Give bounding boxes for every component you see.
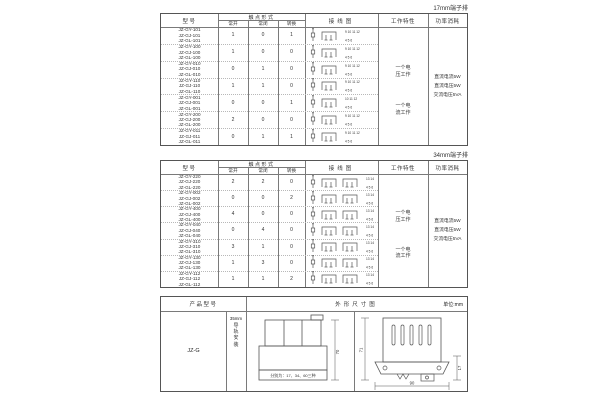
header-changeover: 转换 bbox=[278, 20, 305, 27]
model-cell: JZ-GY-001 JZ-GJ-001 JZ-GL-001 bbox=[161, 94, 218, 111]
model-names: JZ-GY-110 JZ-GJ-110 JZ-GL-110 bbox=[179, 78, 201, 94]
power-consumption-values: 直流电流5W 直流电压5W 交流电压5VA bbox=[428, 174, 467, 287]
contact-nc-count: 2 bbox=[248, 174, 278, 190]
svg-text:13 14: 13 14 bbox=[366, 241, 374, 245]
model-names: JZ-GY-040 JZ-GJ-040 JZ-GL-040 bbox=[178, 222, 200, 238]
header-power-consumption: 功率消耗 bbox=[428, 14, 467, 27]
svg-text:4 5 6: 4 5 6 bbox=[345, 140, 352, 144]
work-mode-current: 一个电 流工作 bbox=[378, 102, 428, 118]
contact-no-count: 0 bbox=[218, 190, 248, 206]
model-names: JZ-GY-310 JZ-GJ-310 JZ-GL-310 bbox=[178, 239, 200, 255]
wiring-diagram-cell: 13 144 5 6 bbox=[305, 222, 378, 238]
wiring-diagram-cell: 9 10 11 124 5 6 bbox=[305, 128, 378, 145]
contact-co-count: 0 bbox=[278, 44, 305, 61]
contact-nc-count: 1 bbox=[248, 78, 278, 95]
svg-text:9 10 11 12: 9 10 11 12 bbox=[345, 47, 360, 51]
svg-text:13 14: 13 14 bbox=[366, 209, 374, 213]
model-cell: JZ-GY-002 JZ-GJ-002 JZ-GL-002 bbox=[161, 190, 218, 206]
model-names: JZ-GY-100 JZ-GJ-100 JZ-GL-100 bbox=[178, 44, 200, 60]
outline-dimension-table: 产品型号外形尺寸图单位:mmJZ-G35mm导 轨 安 装分别为：17、34、6… bbox=[160, 296, 468, 392]
model-cell: JZ-GY-101 JZ-GJ-101 JZ-GL-101 bbox=[161, 27, 218, 44]
model-names: JZ-GY-400 JZ-GJ-400 JZ-GL-400 bbox=[178, 206, 200, 222]
model-names: JZ-GY-220 JZ-GJ-220 JZ-GL-220 bbox=[178, 174, 200, 190]
svg-text:13 14: 13 14 bbox=[366, 193, 374, 197]
model-cell: JZ-GY-200 JZ-GJ-200 JZ-GL-200 bbox=[161, 111, 218, 128]
work-mode-current: 一个电 流工作 bbox=[378, 245, 428, 261]
svg-text:4 5 6: 4 5 6 bbox=[345, 123, 352, 127]
model-names: JZ-GY-001 JZ-GJ-001 JZ-GL-001 bbox=[178, 95, 200, 111]
header-product-model: 产品型号 bbox=[161, 297, 246, 311]
model-cell: JZ-GY-112 JZ-GJ-112 JZ-GL-112 bbox=[161, 271, 218, 287]
mount-width-label: 35mm bbox=[226, 314, 246, 322]
wiring-diagram: 9 10 11 124 5 6 bbox=[307, 62, 377, 77]
header-wiring-diagram: 接线图 bbox=[305, 161, 378, 174]
header-model: 型号 bbox=[161, 161, 218, 174]
svg-text:9 10 11 12: 9 10 11 12 bbox=[345, 114, 360, 118]
catalog-page: 17mm端子排 型号触点形式常开常闭转换接线图工作特性功率消耗JZ-GY-101… bbox=[0, 0, 600, 400]
svg-text:9 10 11 12: 9 10 11 12 bbox=[345, 131, 360, 135]
contact-co-count: 0 bbox=[278, 255, 305, 271]
wiring-diagram: 9 10 11 124 5 6 bbox=[307, 45, 377, 60]
column-divider bbox=[246, 297, 247, 391]
contact-no-count: 0 bbox=[218, 128, 248, 145]
contact-co-count: 0 bbox=[278, 222, 305, 238]
wiring-diagram: 13 144 5 6 bbox=[307, 175, 377, 190]
contact-no-count: 1 bbox=[218, 27, 248, 44]
svg-text:4 5 6: 4 5 6 bbox=[366, 250, 373, 254]
header-normally-open: 常开 bbox=[218, 167, 248, 174]
contact-co-count: 2 bbox=[278, 190, 305, 206]
contact-nc-count: 0 bbox=[248, 94, 278, 111]
contact-co-count: 0 bbox=[278, 61, 305, 78]
model-names: JZ-GY-002 JZ-GJ-002 JZ-GL-002 bbox=[178, 190, 200, 206]
svg-text:13 14: 13 14 bbox=[366, 273, 374, 277]
header-wiring-diagram: 接线图 bbox=[305, 14, 378, 27]
header-normally-closed: 常闭 bbox=[248, 167, 278, 174]
model-names: JZ-GY-011 JZ-GJ-011 JZ-GL-011 bbox=[179, 128, 201, 144]
model-names: JZ-GY-112 JZ-GJ-112 JZ-GL-112 bbox=[179, 271, 201, 287]
wiring-diagram: 13 144 5 6 bbox=[307, 271, 377, 286]
wiring-diagram: 9 10 11 124 5 6 bbox=[307, 129, 377, 144]
header-normally-closed: 常闭 bbox=[248, 20, 278, 27]
svg-text:4 5 6: 4 5 6 bbox=[345, 72, 352, 76]
header-power-consumption: 功率消耗 bbox=[428, 161, 467, 174]
model-cell: JZ-GY-100 JZ-GJ-100 JZ-GL-100 bbox=[161, 44, 218, 61]
wiring-diagram: 13 144 5 6 bbox=[307, 223, 377, 238]
contact-no-count: 1 bbox=[218, 255, 248, 271]
contact-nc-count: 3 bbox=[248, 255, 278, 271]
wiring-diagram: 9 10 11 124 5 6 bbox=[307, 28, 377, 43]
contact-co-count: 0 bbox=[278, 78, 305, 95]
contact-co-count: 0 bbox=[278, 239, 305, 255]
model-names: JZ-GY-130 JZ-GJ-130 JZ-GL-130 bbox=[178, 255, 200, 271]
contact-no-count: 2 bbox=[218, 111, 248, 128]
contact-no-count: 3 bbox=[218, 239, 248, 255]
work-mode-voltage: 一个电 压工作 bbox=[378, 64, 428, 80]
svg-text:4 5 6: 4 5 6 bbox=[366, 282, 373, 286]
model-names: JZ-GY-010 JZ-GJ-010 JZ-GL-010 bbox=[178, 61, 200, 77]
svg-text:13 14: 13 14 bbox=[366, 225, 374, 229]
wiring-diagram-cell: 13 144 5 6 bbox=[305, 190, 378, 206]
svg-text:4 5 6: 4 5 6 bbox=[345, 55, 352, 59]
header-work-feature: 工作特性 bbox=[378, 161, 428, 174]
svg-text:17: 17 bbox=[457, 365, 462, 370]
wiring-diagram-cell: 13 144 5 6 bbox=[305, 174, 378, 190]
svg-text:71: 71 bbox=[359, 347, 364, 352]
work-mode-voltage: 一个电 压工作 bbox=[378, 209, 428, 225]
svg-text:9 10 11 12: 9 10 11 12 bbox=[345, 63, 360, 67]
svg-text:4 5 6: 4 5 6 bbox=[366, 266, 373, 270]
wiring-diagram-cell: 13 144 5 6 bbox=[305, 255, 378, 271]
contact-no-count: 0 bbox=[218, 61, 248, 78]
svg-text:4 5 6: 4 5 6 bbox=[366, 217, 373, 221]
contact-no-count: 0 bbox=[218, 222, 248, 238]
contact-no-count: 2 bbox=[218, 174, 248, 190]
svg-text:13 14: 13 14 bbox=[366, 257, 374, 261]
contact-no-count: 1 bbox=[218, 44, 248, 61]
model-cell: JZ-GY-220 JZ-GJ-220 JZ-GL-220 bbox=[161, 174, 218, 190]
contact-nc-count: 1 bbox=[248, 128, 278, 145]
wiring-diagram-cell: 9 10 11 124 5 6 bbox=[305, 61, 378, 78]
contact-nc-count: 1 bbox=[248, 239, 278, 255]
table2-corner-label: 34mm端子排 bbox=[348, 150, 468, 159]
contact-nc-count: 0 bbox=[248, 111, 278, 128]
contact-co-count: 1 bbox=[278, 27, 305, 44]
contact-nc-count: 0 bbox=[248, 190, 278, 206]
table1-corner-label: 17mm端子排 bbox=[348, 3, 468, 12]
contact-co-count: 0 bbox=[278, 206, 305, 222]
svg-text:13 14: 13 14 bbox=[366, 176, 374, 180]
wiring-diagram: 13 144 5 6 bbox=[307, 191, 377, 206]
contact-co-count: 1 bbox=[278, 128, 305, 145]
front-view-drawing: 分别为：17、34、60三种70 bbox=[251, 312, 349, 390]
contact-nc-count: 1 bbox=[248, 271, 278, 287]
wiring-diagram-cell: 9 10 11 124 5 6 bbox=[305, 111, 378, 128]
power-consumption-values: 直流电流5W 直流电压5W 交流电压5VA bbox=[428, 27, 467, 145]
svg-text:70: 70 bbox=[335, 349, 340, 354]
side-view-drawing: 719017 bbox=[357, 312, 467, 390]
product-model-value: JZ-G bbox=[161, 311, 226, 391]
wiring-diagram-cell: 10 11 124 5 6 bbox=[305, 94, 378, 111]
contact-nc-count: 0 bbox=[248, 27, 278, 44]
wiring-diagram: 9 10 11 124 5 6 bbox=[307, 112, 377, 127]
svg-text:分别为：17、34、60三种: 分别为：17、34、60三种 bbox=[270, 372, 315, 378]
svg-text:4 5 6: 4 5 6 bbox=[345, 38, 352, 42]
wiring-diagram: 13 144 5 6 bbox=[307, 255, 377, 270]
svg-text:4 5 6: 4 5 6 bbox=[366, 201, 373, 205]
contact-no-count: 1 bbox=[218, 78, 248, 95]
header-normally-open: 常开 bbox=[218, 20, 248, 27]
svg-text:4 5 6: 4 5 6 bbox=[366, 233, 373, 237]
wiring-diagram-cell: 9 10 11 124 5 6 bbox=[305, 44, 378, 61]
model-cell: JZ-GY-011 JZ-GJ-011 JZ-GL-011 bbox=[161, 128, 218, 145]
wiring-diagram-cell: 9 10 11 124 5 6 bbox=[305, 27, 378, 44]
mount-method-label: 导 轨 安 装 bbox=[226, 323, 246, 373]
spec-table-34mm: 型号触点形式常开常闭转换接线图工作特性功率消耗JZ-GY-220 JZ-GJ-2… bbox=[160, 160, 468, 288]
header-work-feature: 工作特性 bbox=[378, 14, 428, 27]
wiring-diagram: 13 144 5 6 bbox=[307, 207, 377, 222]
svg-text:4 5 6: 4 5 6 bbox=[345, 89, 352, 93]
header-changeover: 转换 bbox=[278, 167, 305, 174]
model-names: JZ-GY-101 JZ-GJ-101 JZ-GL-101 bbox=[178, 27, 200, 43]
svg-text:4 5 6: 4 5 6 bbox=[345, 106, 352, 110]
model-cell: JZ-GY-110 JZ-GJ-110 JZ-GL-110 bbox=[161, 78, 218, 95]
spec-table-17mm: 型号触点形式常开常闭转换接线图工作特性功率消耗JZ-GY-101 JZ-GJ-1… bbox=[160, 13, 468, 146]
wiring-diagram: 10 11 124 5 6 bbox=[307, 95, 377, 110]
wiring-diagram: 13 144 5 6 bbox=[307, 239, 377, 254]
svg-text:10 11 12: 10 11 12 bbox=[345, 97, 357, 101]
wiring-diagram-cell: 13 144 5 6 bbox=[305, 271, 378, 287]
model-cell: JZ-GY-400 JZ-GJ-400 JZ-GL-400 bbox=[161, 206, 218, 222]
wiring-diagram-cell: 13 144 5 6 bbox=[305, 206, 378, 222]
model-cell: JZ-GY-040 JZ-GJ-040 JZ-GL-040 bbox=[161, 222, 218, 238]
model-cell: JZ-GY-010 JZ-GJ-010 JZ-GL-010 bbox=[161, 61, 218, 78]
contact-nc-count: 0 bbox=[248, 44, 278, 61]
wiring-diagram-cell: 13 144 5 6 bbox=[305, 239, 378, 255]
contact-no-count: 1 bbox=[218, 271, 248, 287]
svg-text:90: 90 bbox=[410, 381, 415, 386]
contact-no-count: 0 bbox=[218, 94, 248, 111]
contact-no-count: 4 bbox=[218, 206, 248, 222]
svg-text:4 5 6: 4 5 6 bbox=[366, 185, 373, 189]
contact-co-count: 0 bbox=[278, 111, 305, 128]
svg-text:9 10 11 12: 9 10 11 12 bbox=[345, 80, 360, 84]
header-unit: 单位:mm bbox=[405, 297, 463, 311]
model-cell: JZ-GY-310 JZ-GJ-310 JZ-GL-310 bbox=[161, 239, 218, 255]
drawing-divider bbox=[354, 311, 355, 391]
contact-co-count: 2 bbox=[278, 271, 305, 287]
contact-nc-count: 1 bbox=[248, 61, 278, 78]
wiring-diagram: 9 10 11 124 5 6 bbox=[307, 78, 377, 93]
contact-nc-count: 4 bbox=[248, 222, 278, 238]
svg-text:9 10 11 12: 9 10 11 12 bbox=[345, 30, 360, 34]
header-model: 型号 bbox=[161, 14, 218, 27]
wiring-diagram-cell: 9 10 11 124 5 6 bbox=[305, 78, 378, 95]
contact-co-count: 1 bbox=[278, 94, 305, 111]
model-names: JZ-GY-200 JZ-GJ-200 JZ-GL-200 bbox=[178, 112, 200, 128]
contact-nc-count: 0 bbox=[248, 206, 278, 222]
contact-co-count: 0 bbox=[278, 174, 305, 190]
model-cell: JZ-GY-130 JZ-GJ-130 JZ-GL-130 bbox=[161, 255, 218, 271]
